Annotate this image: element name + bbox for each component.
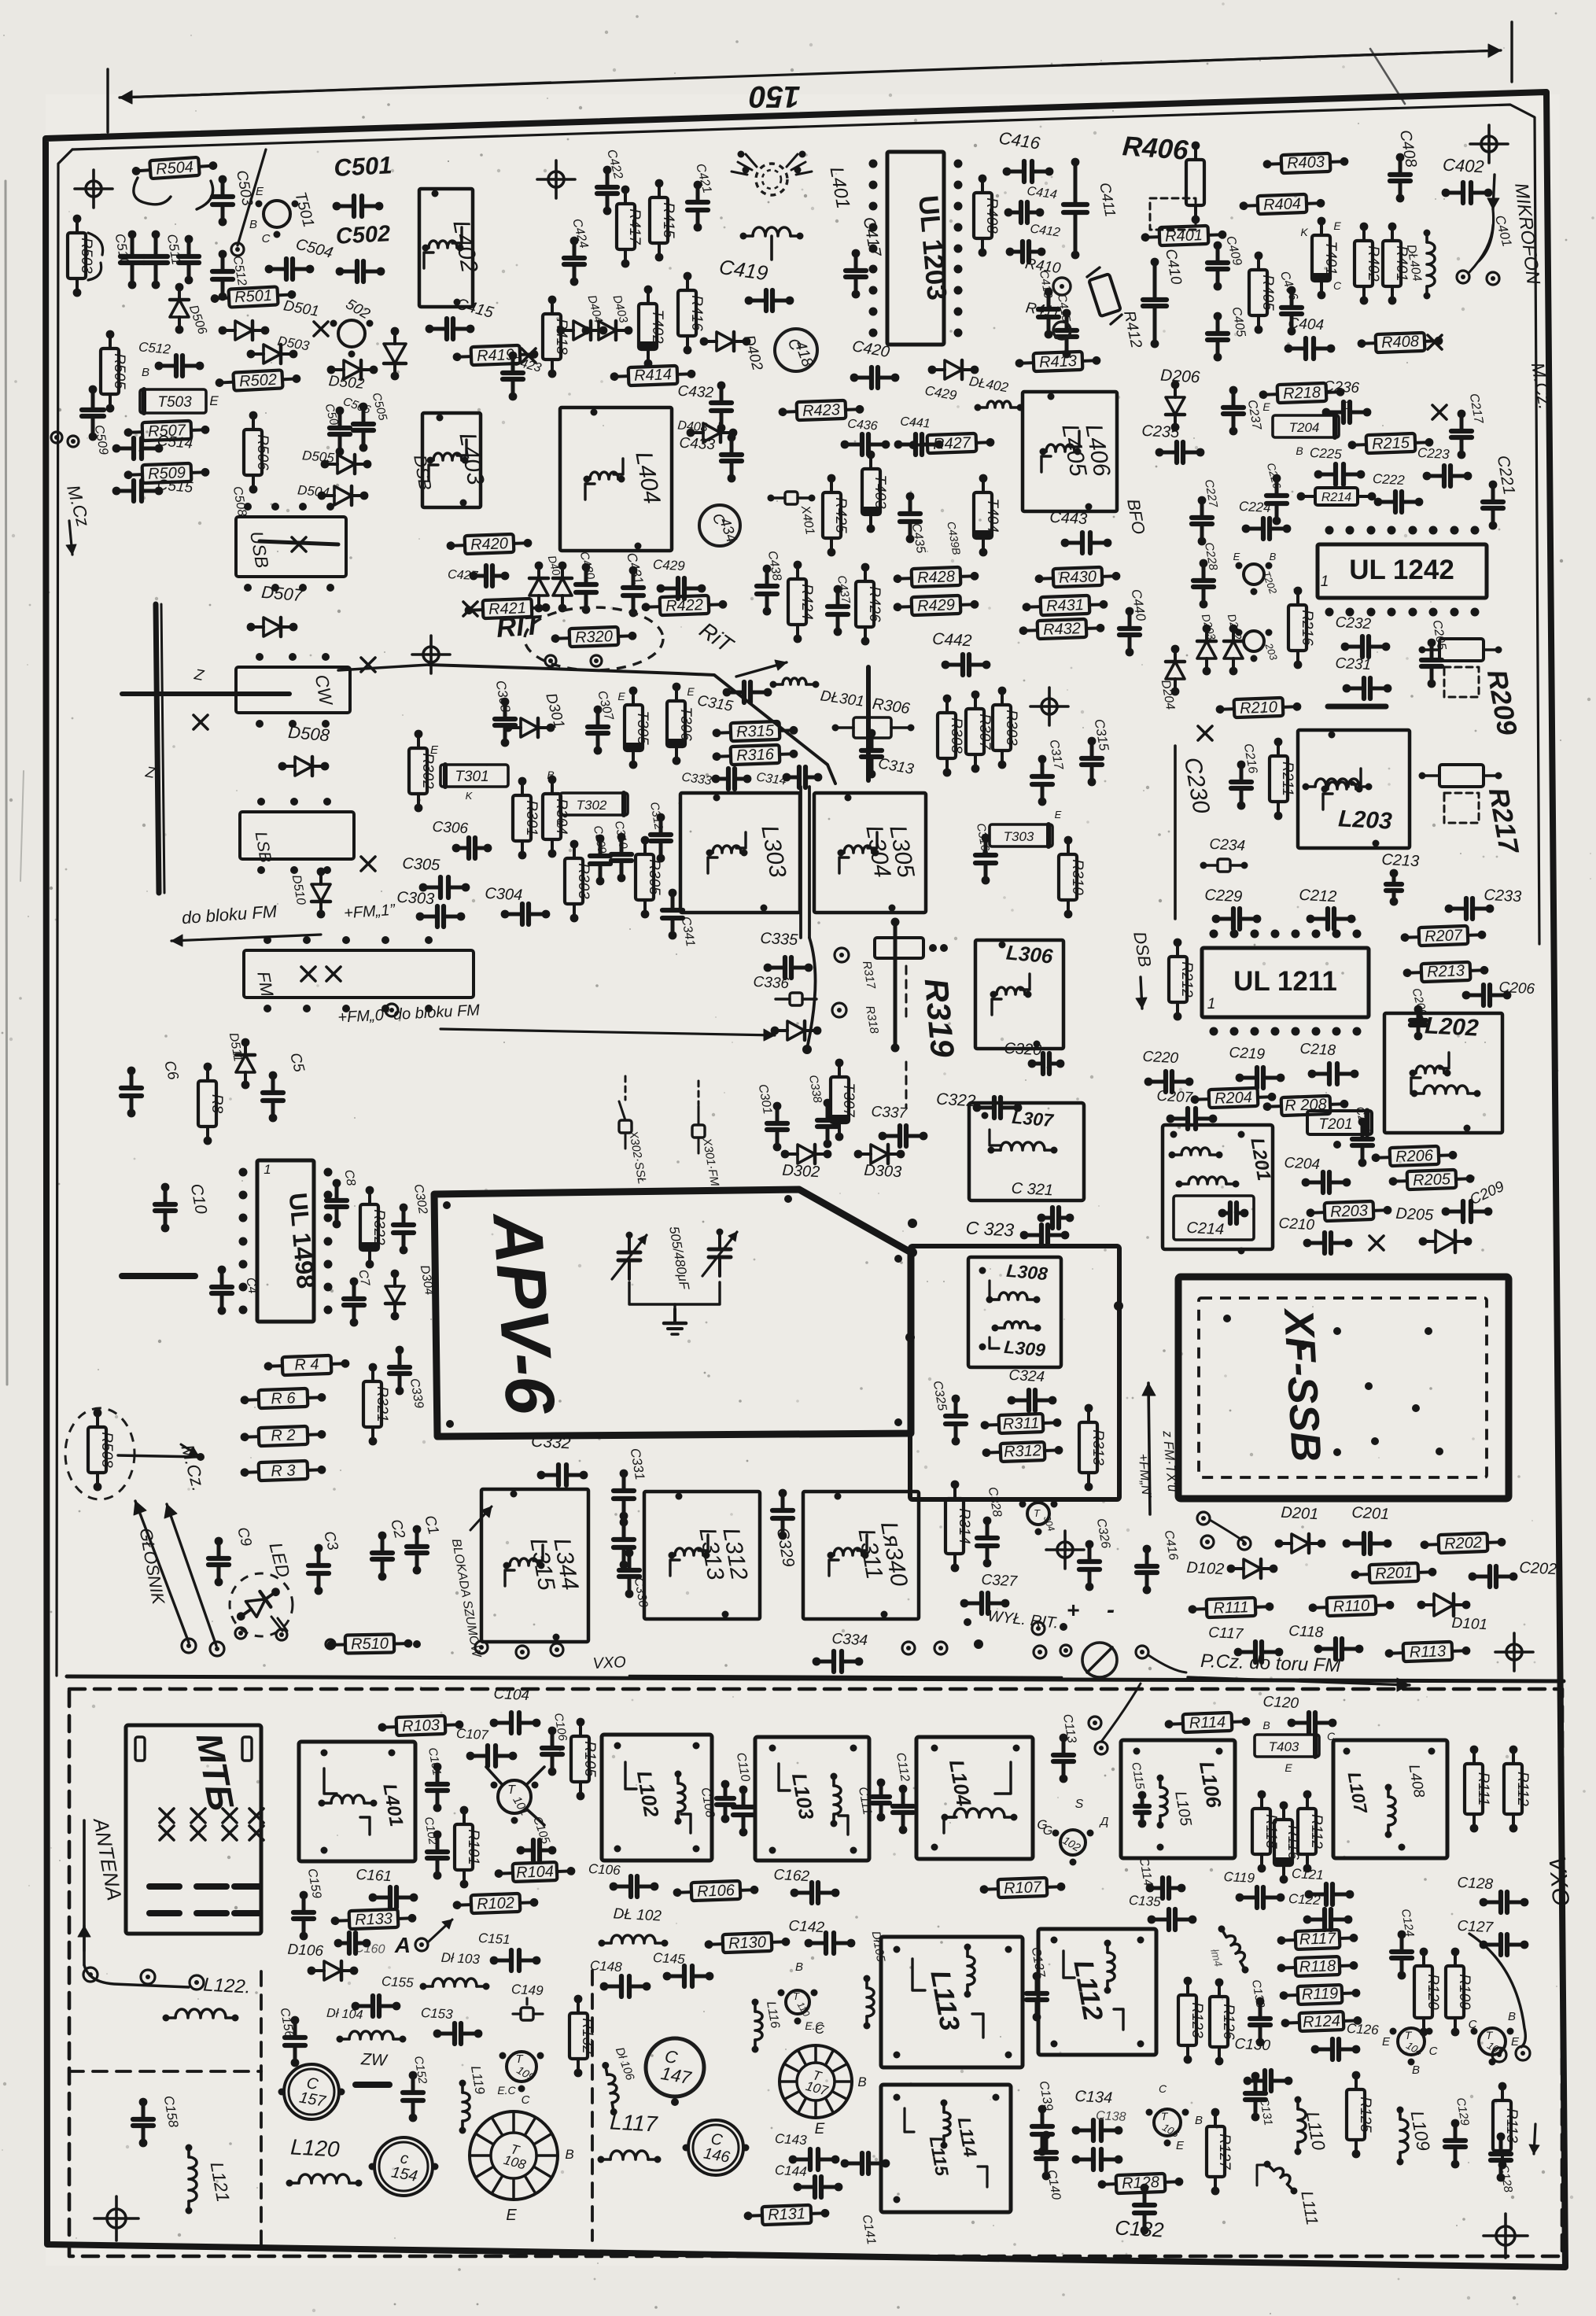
svg-text:C442: C442	[932, 630, 973, 651]
svg-text:R307: R307	[976, 714, 993, 750]
svg-text:C305: C305	[402, 855, 441, 875]
svg-text:R107: R107	[1004, 1879, 1042, 1897]
svg-text:C121: C121	[1291, 1866, 1324, 1883]
svg-text:C337: C337	[871, 1104, 909, 1122]
svg-text:L306: L306	[1005, 941, 1054, 968]
svg-text:B: B	[1262, 1719, 1270, 1731]
svg-text:K: K	[466, 790, 474, 802]
svg-text:R423: R423	[802, 401, 841, 420]
svg-text:R427: R427	[933, 434, 971, 453]
svg-text:UL 1211: UL 1211	[1233, 966, 1337, 997]
svg-text:R213: R213	[1427, 962, 1465, 981]
svg-text:+: +	[1067, 1598, 1079, 1622]
svg-text:S: S	[1075, 1798, 1084, 1811]
svg-text:R210: R210	[1240, 699, 1278, 717]
svg-text:C148: C148	[589, 1958, 622, 1975]
svg-text:R112: R112	[1308, 1814, 1325, 1849]
svg-text:R321: R321	[374, 1386, 390, 1422]
svg-text:T: T	[1161, 2110, 1169, 2122]
svg-text:C202: C202	[1519, 1559, 1557, 1578]
svg-text:E: E	[617, 690, 625, 703]
svg-text:E: E	[687, 685, 695, 698]
svg-text:C204: C204	[1284, 1155, 1320, 1173]
svg-text:R214: R214	[1321, 491, 1351, 504]
svg-text:D408: D408	[677, 419, 709, 434]
svg-text:R112: R112	[1514, 1772, 1531, 1806]
svg-text:C515: C515	[157, 477, 194, 496]
svg-text:R119: R119	[1301, 1985, 1338, 2004]
svg-text:L120: L120	[290, 2134, 341, 2161]
svg-text:R113: R113	[1503, 2108, 1520, 2143]
svg-text:R103: R103	[402, 1717, 440, 1735]
svg-text:R504: R504	[155, 158, 194, 178]
svg-text:R215: R215	[1372, 434, 1410, 453]
svg-text:1: 1	[1207, 996, 1216, 1012]
svg-text:C162: C162	[773, 1867, 810, 1885]
svg-text:C327: C327	[981, 1572, 1019, 1590]
svg-text:VXO: VXO	[1543, 1855, 1573, 1907]
svg-text:C501: C501	[334, 151, 393, 182]
svg-text:C225: C225	[1309, 445, 1342, 462]
svg-text:R319: R319	[918, 977, 962, 1060]
svg-text:D504: D504	[297, 482, 330, 500]
svg-text:R401: R401	[1165, 227, 1203, 245]
svg-text:C: C	[1469, 2018, 1477, 2031]
svg-text:D508: D508	[287, 722, 330, 746]
svg-text:R510: R510	[351, 1636, 389, 1654]
svg-text:C304: C304	[485, 885, 523, 904]
svg-text:D505: D505	[301, 448, 335, 466]
svg-text:A: A	[394, 1933, 411, 1957]
svg-text:C144: C144	[774, 2163, 807, 2179]
svg-text:C210: C210	[1278, 1215, 1315, 1234]
svg-text:Dł 103: Dł 103	[440, 1950, 481, 1967]
svg-text:C201: C201	[1351, 1504, 1390, 1523]
svg-text:R 2: R 2	[271, 1426, 296, 1444]
svg-text:C149: C149	[510, 1982, 544, 1998]
svg-text:Д: Д	[1099, 1815, 1109, 1828]
svg-text:R322: R322	[370, 1209, 387, 1245]
svg-text:T403: T403	[872, 474, 888, 509]
svg-text:C235: C235	[1141, 422, 1181, 442]
svg-text:R203: R203	[1330, 1202, 1369, 1221]
svg-text:L307: L307	[1011, 1107, 1055, 1131]
svg-text:R201: R201	[1375, 1564, 1414, 1583]
svg-text:B: B	[857, 2074, 866, 2089]
svg-text:R124: R124	[1303, 2012, 1341, 2031]
svg-text:R503: R503	[78, 238, 94, 274]
svg-text:C 323: C 323	[965, 1217, 1015, 1240]
svg-text:E: E	[1233, 551, 1240, 562]
svg-text:D302: D302	[782, 1162, 820, 1181]
svg-text:C432: C432	[677, 383, 714, 401]
svg-text:R402: R402	[1365, 245, 1381, 282]
svg-text:E: E	[209, 393, 219, 408]
svg-text:R109: R109	[1456, 1974, 1473, 2010]
svg-text:C 321: C 321	[1011, 1180, 1053, 1200]
svg-text:B: B	[1412, 2063, 1420, 2077]
svg-text:R506: R506	[254, 434, 271, 470]
svg-text:L309: L309	[1003, 1337, 1046, 1360]
svg-text:C306: C306	[432, 819, 469, 837]
svg-text:C135: C135	[1128, 1893, 1161, 1909]
svg-text:R 6: R 6	[271, 1389, 297, 1407]
svg-text:R401: R401	[1393, 245, 1410, 281]
svg-text:R432: R432	[1043, 620, 1082, 639]
svg-text:R111: R111	[1475, 1772, 1491, 1806]
svg-text:R429: R429	[917, 596, 956, 615]
svg-text:R101: R101	[465, 1829, 481, 1864]
svg-text:C429: C429	[652, 557, 685, 573]
svg-text:APV-6: APV-6	[478, 1209, 570, 1418]
svg-text:R304: R304	[553, 798, 569, 834]
svg-text:D303: D303	[864, 1162, 902, 1181]
svg-text:R216: R216	[1299, 610, 1315, 646]
svg-text:D507: D507	[260, 582, 304, 606]
svg-text:C223: C223	[1417, 445, 1450, 462]
svg-text:C233: C233	[1484, 887, 1522, 905]
svg-text:R207: R207	[1425, 927, 1463, 946]
svg-text:C128: C128	[1457, 1875, 1494, 1893]
svg-text:K: K	[1300, 226, 1308, 238]
svg-text:R305: R305	[646, 859, 662, 895]
svg-text:R303: R303	[575, 863, 592, 899]
svg-text:C106: C106	[588, 1861, 621, 1878]
svg-text:E: E	[1262, 400, 1270, 413]
svg-text:R125: R125	[1357, 2097, 1373, 2133]
svg-text:R505: R505	[111, 353, 127, 389]
svg-text:RIT: RIT	[496, 610, 544, 644]
svg-text:R422: R422	[665, 596, 704, 615]
svg-text:T: T	[507, 1783, 516, 1797]
svg-text:C117: C117	[1208, 1625, 1244, 1643]
svg-text:R420: R420	[470, 535, 509, 554]
svg-text:C236: C236	[1323, 378, 1360, 396]
svg-text:B: B	[982, 848, 989, 860]
svg-text:R308: R308	[948, 717, 964, 754]
svg-text:C119: C119	[1223, 1869, 1255, 1886]
svg-text:C232: C232	[1335, 614, 1372, 632]
svg-text:R405: R405	[1259, 275, 1276, 311]
svg-text:E: E	[1285, 1761, 1292, 1774]
svg-text:C134: C134	[1074, 2088, 1113, 2107]
svg-text:C207: C207	[1156, 1088, 1194, 1106]
svg-text:T303: T303	[1004, 829, 1034, 844]
svg-text:E: E	[430, 743, 439, 757]
svg-text:R131: R131	[768, 2205, 806, 2224]
svg-text:R315: R315	[736, 722, 775, 741]
svg-text:C: C	[522, 2093, 530, 2107]
svg-text:T: T	[793, 1990, 800, 2002]
svg-text:C219: C219	[1229, 1045, 1266, 1063]
svg-text:R311: R311	[1002, 1414, 1039, 1433]
svg-text:C4: C4	[243, 1277, 259, 1295]
svg-text:R117: R117	[1299, 1930, 1336, 1949]
svg-text:+FM„1”: +FM„1”	[343, 902, 396, 923]
svg-text:L203: L203	[1337, 806, 1392, 835]
svg-text:C512: C512	[138, 339, 171, 357]
svg-text:R404: R404	[1263, 195, 1302, 214]
svg-text:C: C	[815, 2022, 825, 2037]
svg-text:E: E	[1382, 2035, 1391, 2049]
svg-text:C443: C443	[1049, 509, 1088, 528]
svg-text:1: 1	[1321, 573, 1329, 590]
svg-text:B: B	[1508, 2010, 1516, 2023]
svg-text:C8: C8	[341, 1169, 357, 1187]
svg-text:E: E	[1333, 219, 1341, 232]
svg-text:C514: C514	[157, 433, 194, 452]
svg-text:C324: C324	[1008, 1367, 1045, 1385]
svg-text:E: E	[506, 2207, 517, 2224]
svg-text:C433: C433	[679, 435, 716, 453]
svg-text:Dł 104: Dł 104	[326, 2007, 363, 2022]
svg-text:C145: C145	[652, 1950, 685, 1967]
svg-text:T401: T401	[1322, 241, 1339, 275]
svg-text:T306: T306	[677, 706, 694, 741]
svg-text:R301: R301	[523, 800, 540, 835]
svg-text:C229: C229	[1204, 887, 1243, 905]
svg-text:L202: L202	[1424, 1012, 1479, 1042]
svg-text:R118: R118	[1299, 1957, 1336, 1976]
svg-text:T307: T307	[840, 1082, 857, 1118]
svg-text:C441: C441	[900, 415, 931, 430]
svg-text:C218: C218	[1299, 1041, 1336, 1059]
svg-text:C143: C143	[774, 2131, 807, 2148]
svg-text:R302: R302	[419, 753, 436, 789]
svg-text:C151: C151	[477, 1931, 510, 1947]
svg-text:DŁ 102: DŁ 102	[613, 1905, 662, 1924]
svg-text:C155: C155	[381, 1974, 414, 1990]
svg-text:R102: R102	[477, 1894, 515, 1913]
svg-text:R126: R126	[1220, 2004, 1237, 2040]
svg-text:D201: D201	[1281, 1504, 1319, 1523]
svg-text:B: B	[1270, 551, 1277, 562]
svg-text:R310: R310	[1069, 859, 1086, 895]
svg-text:D502: D502	[328, 373, 366, 393]
svg-text:C234: C234	[1209, 836, 1245, 854]
svg-text:C335: C335	[760, 930, 799, 950]
svg-text:C107: C107	[455, 1726, 488, 1743]
svg-text:T201: T201	[1318, 1116, 1352, 1133]
svg-text:R110: R110	[1332, 1597, 1369, 1616]
svg-text:R202: R202	[1444, 1534, 1483, 1553]
svg-text:L122.: L122.	[203, 1974, 251, 1997]
svg-text:R104: R104	[516, 1863, 555, 1882]
svg-text:L308: L308	[1005, 1260, 1049, 1284]
svg-text:1: 1	[264, 1162, 271, 1177]
svg-text:C336: C336	[753, 974, 790, 992]
svg-text:R320: R320	[575, 628, 614, 647]
svg-text:C: C	[1333, 279, 1342, 292]
svg-text:VXO: VXO	[592, 1654, 626, 1672]
svg-text:R424: R424	[798, 584, 815, 619]
svg-text:R314: R314	[956, 1508, 972, 1543]
svg-text:C138: C138	[1096, 2109, 1126, 2124]
svg-text:C320: C320	[1004, 1040, 1042, 1059]
svg-text:C122: C122	[1288, 1891, 1321, 1908]
svg-text:B: B	[249, 218, 257, 231]
svg-text:R418: R418	[553, 319, 569, 355]
svg-text:R211: R211	[1279, 762, 1296, 796]
svg-text:C153: C153	[420, 2005, 453, 2022]
svg-text:C: C	[262, 232, 271, 245]
svg-text:R111: R111	[1213, 1599, 1249, 1617]
svg-text:C222: C222	[1372, 471, 1405, 488]
svg-text:B: B	[142, 366, 149, 379]
svg-text:R303: R303	[1003, 710, 1019, 746]
svg-text:C404: C404	[1288, 315, 1324, 334]
svg-text:R408: R408	[1381, 333, 1420, 352]
svg-text:E: E	[1511, 2035, 1520, 2049]
svg-text:R120: R120	[1425, 1974, 1441, 2010]
svg-text:C142: C142	[788, 1918, 825, 1936]
svg-text:C: C	[1159, 2082, 1167, 2095]
svg-text:R425: R425	[832, 497, 849, 533]
svg-text:D206: D206	[1160, 367, 1201, 387]
svg-text:150: 150	[749, 79, 800, 113]
svg-text:T305: T305	[634, 710, 651, 745]
svg-text:R 4: R 4	[294, 1355, 319, 1374]
svg-text:R312: R312	[1004, 1442, 1042, 1461]
svg-text:C231: C231	[1335, 655, 1371, 673]
svg-text:E: E	[1055, 809, 1062, 821]
svg-text:D102: D102	[1186, 1559, 1225, 1578]
svg-text:R127: R127	[1216, 2133, 1233, 2170]
svg-text:R204: R204	[1215, 1089, 1253, 1108]
svg-text:T: T	[1034, 1507, 1041, 1519]
svg-text:C: C	[1429, 2045, 1438, 2058]
svg-text:R430: R430	[1059, 568, 1097, 587]
svg-text:C104: C104	[493, 1686, 529, 1704]
svg-text:C332: C332	[531, 1433, 572, 1453]
svg-text:R130: R130	[728, 1934, 767, 1953]
svg-text:D101: D101	[1451, 1615, 1487, 1633]
svg-text:R106: R106	[697, 1882, 735, 1901]
svg-text:C132: C132	[1115, 2215, 1165, 2241]
svg-text:T403: T403	[1269, 1739, 1299, 1754]
svg-text:R403: R403	[1287, 153, 1325, 172]
svg-text:R426: R426	[866, 586, 883, 622]
svg-text:C127: C127	[1457, 1918, 1495, 1936]
svg-text:C212: C212	[1299, 887, 1337, 905]
svg-text:R406: R406	[1122, 131, 1190, 166]
svg-text:R8: R8	[208, 1094, 225, 1114]
svg-text:R 3: R 3	[271, 1462, 296, 1480]
svg-text:C502: C502	[335, 221, 391, 249]
svg-text:R413: R413	[1039, 352, 1078, 371]
svg-text:R313: R313	[1089, 1429, 1106, 1466]
svg-text:C161: C161	[356, 1867, 392, 1885]
svg-text:R128: R128	[1122, 2174, 1160, 2192]
svg-text:R502: R502	[239, 371, 278, 390]
svg-text:C130: C130	[1234, 2036, 1271, 2054]
svg-text:E: E	[256, 185, 264, 198]
svg-text:T204: T204	[1289, 420, 1320, 435]
svg-text:T302: T302	[577, 798, 607, 813]
svg-text:R113: R113	[1409, 1643, 1446, 1661]
svg-text:R218: R218	[1283, 384, 1321, 403]
svg-text:L117: L117	[610, 2109, 659, 2136]
svg-text:C220: C220	[1142, 1049, 1179, 1067]
svg-text:R133: R133	[355, 1910, 393, 1929]
svg-text:R417: R417	[626, 208, 643, 245]
svg-text:-: -	[1107, 1597, 1115, 1623]
svg-text:T503: T503	[157, 394, 192, 411]
svg-text:R415: R415	[660, 202, 676, 238]
svg-text:E: E	[1176, 2139, 1185, 2152]
svg-text:C334: C334	[831, 1631, 868, 1649]
svg-text:R316: R316	[736, 746, 775, 765]
svg-text:C213: C213	[1381, 851, 1420, 870]
svg-text:C303: C303	[396, 889, 435, 908]
svg-text:C214: C214	[1186, 1219, 1225, 1238]
svg-text:B: B	[795, 1960, 803, 1974]
svg-text:C402: C402	[1442, 155, 1484, 177]
svg-text:R508: R508	[98, 1432, 115, 1468]
svg-text:B: B	[1195, 2114, 1203, 2127]
svg-text:D106: D106	[287, 1942, 324, 1960]
svg-text:D205: D205	[1395, 1205, 1435, 1225]
svg-text:C120: C120	[1262, 1694, 1299, 1712]
svg-text:R205: R205	[1413, 1171, 1451, 1189]
svg-text:R105: R105	[581, 1741, 598, 1777]
svg-text:T404: T404	[984, 498, 1001, 532]
svg-text:B: B	[565, 2147, 573, 2162]
svg-text:XF-SSB: XF-SSB	[1275, 1305, 1329, 1462]
svg-text:R212: R212	[1178, 961, 1195, 998]
svg-text:T402: T402	[649, 309, 665, 344]
svg-text:ZW: ZW	[359, 2050, 389, 2070]
svg-text:R206: R206	[1395, 1147, 1434, 1166]
svg-text:R428: R428	[917, 568, 956, 587]
svg-text:R416: R416	[688, 295, 705, 331]
svg-text:R414: R414	[634, 366, 673, 385]
svg-text:R114: R114	[1189, 1713, 1226, 1732]
svg-text:C436: C436	[847, 417, 879, 433]
svg-text:C118: C118	[1288, 1623, 1324, 1641]
svg-text:UL 1242: UL 1242	[1349, 555, 1454, 585]
svg-text:G: G	[1037, 1817, 1047, 1832]
svg-text:R132: R132	[579, 2018, 595, 2054]
svg-text:R501: R501	[234, 287, 273, 306]
svg-text:E: E	[815, 2121, 825, 2137]
svg-text:T301: T301	[455, 769, 488, 785]
svg-text:R431: R431	[1046, 596, 1085, 615]
svg-text:C126: C126	[1346, 2021, 1379, 2038]
svg-text:E.C: E.C	[497, 2084, 516, 2097]
svg-text:R123: R123	[1189, 2002, 1205, 2038]
svg-text:R408: R408	[983, 197, 1000, 234]
svg-text:B: B	[1296, 444, 1303, 457]
